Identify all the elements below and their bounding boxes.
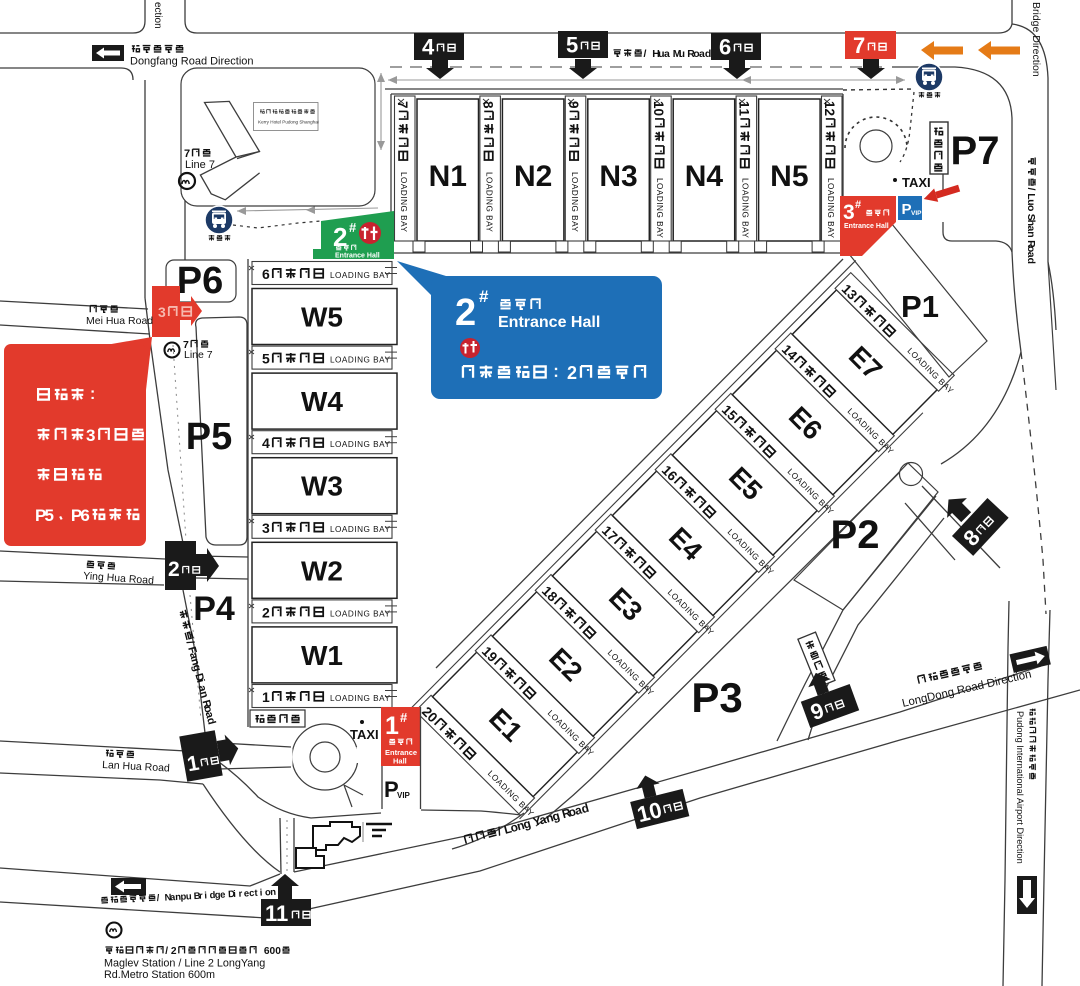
svg-text:#: # [855, 199, 861, 211]
svg-text:a: a [664, 48, 670, 60]
svg-text:7: 7 [395, 101, 410, 109]
svg-text:u: u [679, 48, 685, 60]
svg-text:P2: P2 [831, 513, 880, 557]
svg-text:4: 4 [422, 35, 435, 60]
svg-text:W5: W5 [301, 302, 343, 333]
svg-text:Entrance Hall: Entrance Hall [844, 223, 889, 230]
svg-text:LOADING BAY: LOADING BAY [330, 356, 390, 365]
svg-text:/: / [644, 48, 647, 60]
svg-text:P5: P5 [186, 416, 232, 458]
svg-text:5: 5 [262, 351, 270, 367]
svg-text:1: 1 [385, 712, 399, 740]
svg-text:Kerry Hotel Pudong Shanghai: Kerry Hotel Pudong Shanghai [258, 120, 319, 125]
svg-text:W2: W2 [301, 555, 343, 586]
svg-text:P1: P1 [901, 289, 939, 324]
svg-text:Maglev Station / Line 2 Long: Maglev Station / Line 2 LongYang [104, 958, 265, 970]
svg-text:i: i [204, 890, 207, 901]
svg-text:d: d [705, 48, 711, 60]
svg-text:3: 3 [158, 304, 166, 320]
svg-text:2: 2 [168, 558, 180, 581]
svg-text:LOADING BAY: LOADING BAY [484, 172, 493, 232]
svg-text:Rd.Metro Station 600m: Rd.Metro Station 600m [104, 969, 215, 981]
svg-text:#: # [479, 287, 489, 306]
svg-text:P4: P4 [193, 590, 235, 628]
svg-text:i: i [259, 887, 262, 898]
svg-text:Bridge Direction: Bridge Direction [1030, 2, 1042, 77]
svg-text:6: 6 [719, 35, 731, 60]
svg-text:P7: P7 [951, 129, 1000, 173]
svg-text:P6: P6 [177, 260, 223, 302]
svg-text:N1: N1 [429, 160, 467, 193]
svg-text:3: 3 [262, 520, 270, 536]
svg-text:1: 1 [737, 109, 752, 117]
svg-text:LOADING BAY: LOADING BAY [655, 178, 664, 238]
svg-text:5: 5 [45, 506, 54, 525]
svg-text:LOADING BAY: LOADING BAY [330, 694, 390, 703]
svg-text:TAXI: TAXI [902, 175, 931, 190]
svg-text:Mei Hua Road: Mei Hua Road [86, 315, 153, 327]
svg-text:2: 2 [262, 604, 270, 620]
svg-text:3: 3 [86, 426, 95, 445]
svg-text:LOADING BAY: LOADING BAY [826, 178, 835, 238]
svg-text:2: 2 [333, 222, 347, 252]
svg-text:#: # [349, 220, 357, 235]
svg-text:#: # [400, 710, 408, 725]
svg-text:P: P [902, 201, 912, 218]
svg-text:LOADING BAY: LOADING BAY [741, 178, 750, 238]
svg-text:o: o [1025, 205, 1037, 211]
svg-text:TAXI: TAXI [350, 727, 379, 742]
svg-text:0: 0 [651, 109, 666, 117]
svg-text:11: 11 [265, 901, 288, 926]
svg-text:u: u [186, 891, 193, 902]
svg-text:2: 2 [567, 363, 577, 383]
svg-text:6: 6 [80, 506, 89, 525]
svg-text:8: 8 [480, 101, 495, 109]
svg-text:VIP: VIP [911, 210, 922, 217]
svg-text:LOADING BAY: LOADING BAY [399, 172, 408, 232]
svg-text:9: 9 [566, 101, 581, 109]
svg-text:7: 7 [853, 33, 865, 58]
svg-text:0: 0 [275, 946, 281, 957]
svg-text:Entrance Hall: Entrance Hall [335, 253, 380, 260]
svg-text:Hall: Hall [393, 757, 407, 766]
svg-text:LOADING BAY: LOADING BAY [570, 172, 579, 232]
svg-text:1: 1 [262, 689, 270, 705]
svg-text:P3: P3 [691, 674, 742, 721]
svg-text:5: 5 [566, 33, 578, 58]
svg-text:/: / [1025, 188, 1037, 191]
svg-text:n: n [1025, 231, 1037, 237]
svg-text:LOADING BAY: LOADING BAY [330, 271, 390, 280]
svg-text:W1: W1 [301, 640, 343, 671]
svg-text:e: e [220, 889, 226, 900]
svg-text:ection: ection [152, 2, 163, 29]
svg-text:LOADING BAY: LOADING BAY [330, 440, 390, 449]
svg-text:Line 7: Line 7 [185, 159, 215, 171]
svg-text:Dongfang Road Direction: Dongfang Road Direction [130, 56, 254, 68]
svg-text:i: i [233, 889, 236, 900]
svg-text:4: 4 [262, 435, 270, 451]
svg-text:2: 2 [171, 946, 177, 957]
svg-text:/: / [165, 946, 168, 957]
svg-text:LOADING BAY: LOADING BAY [330, 525, 390, 534]
svg-text:2: 2 [455, 292, 476, 334]
svg-text:VIP: VIP [397, 791, 411, 800]
svg-text:Line 7: Line 7 [184, 349, 213, 361]
svg-text:2: 2 [822, 109, 837, 117]
svg-text:3: 3 [843, 201, 855, 224]
svg-text:n: n [270, 887, 277, 898]
svg-text:6: 6 [262, 266, 270, 282]
svg-text:N2: N2 [514, 160, 552, 193]
svg-text:N5: N5 [770, 160, 808, 193]
svg-text:W3: W3 [301, 471, 343, 502]
svg-text:N3: N3 [599, 160, 637, 193]
svg-text:Entrance Hall: Entrance Hall [498, 314, 600, 331]
svg-text:N4: N4 [685, 160, 724, 193]
svg-text:d: d [1025, 258, 1037, 264]
svg-text:LOADING BAY: LOADING BAY [330, 609, 390, 618]
svg-text:Pudong International Airport D: Pudong International Airport Direction [1015, 711, 1025, 864]
svg-text:W4: W4 [301, 386, 343, 417]
